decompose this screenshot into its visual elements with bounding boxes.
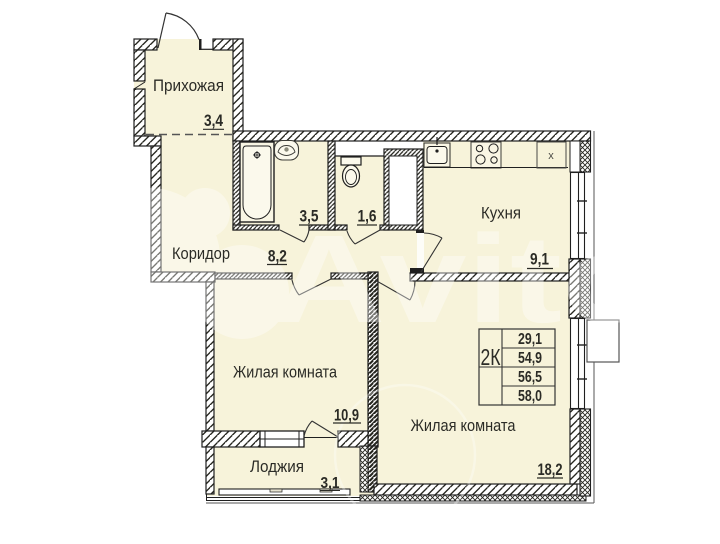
- svg-text:Лоджия: Лоджия: [250, 458, 304, 476]
- svg-text:29,1: 29,1: [518, 331, 542, 348]
- svg-text:8,2: 8,2: [268, 247, 287, 266]
- svg-text:3,5: 3,5: [300, 207, 319, 226]
- svg-text:10,9: 10,9: [334, 406, 359, 425]
- svg-text:Жилая комната: Жилая комната: [233, 364, 338, 382]
- svg-text:Прихожая: Прихожая: [153, 77, 224, 95]
- svg-text:Avito: Avito: [273, 210, 658, 349]
- svg-text:9,1: 9,1: [530, 250, 549, 269]
- svg-text:18,2: 18,2: [538, 460, 563, 479]
- svg-text:Жилая комната: Жилая комната: [411, 417, 517, 435]
- svg-text:56,5: 56,5: [518, 369, 542, 386]
- svg-text:Коридор: Коридор: [172, 245, 230, 263]
- svg-text:3,4: 3,4: [204, 111, 223, 130]
- svg-text:Кухня: Кухня: [481, 205, 521, 223]
- svg-text:1,6: 1,6: [358, 207, 377, 226]
- svg-text:2К: 2К: [481, 344, 501, 370]
- svg-text:x: x: [548, 150, 554, 162]
- svg-text:3,1: 3,1: [321, 475, 340, 492]
- svg-text:58,0: 58,0: [518, 388, 542, 405]
- svg-text:54,9: 54,9: [518, 350, 542, 367]
